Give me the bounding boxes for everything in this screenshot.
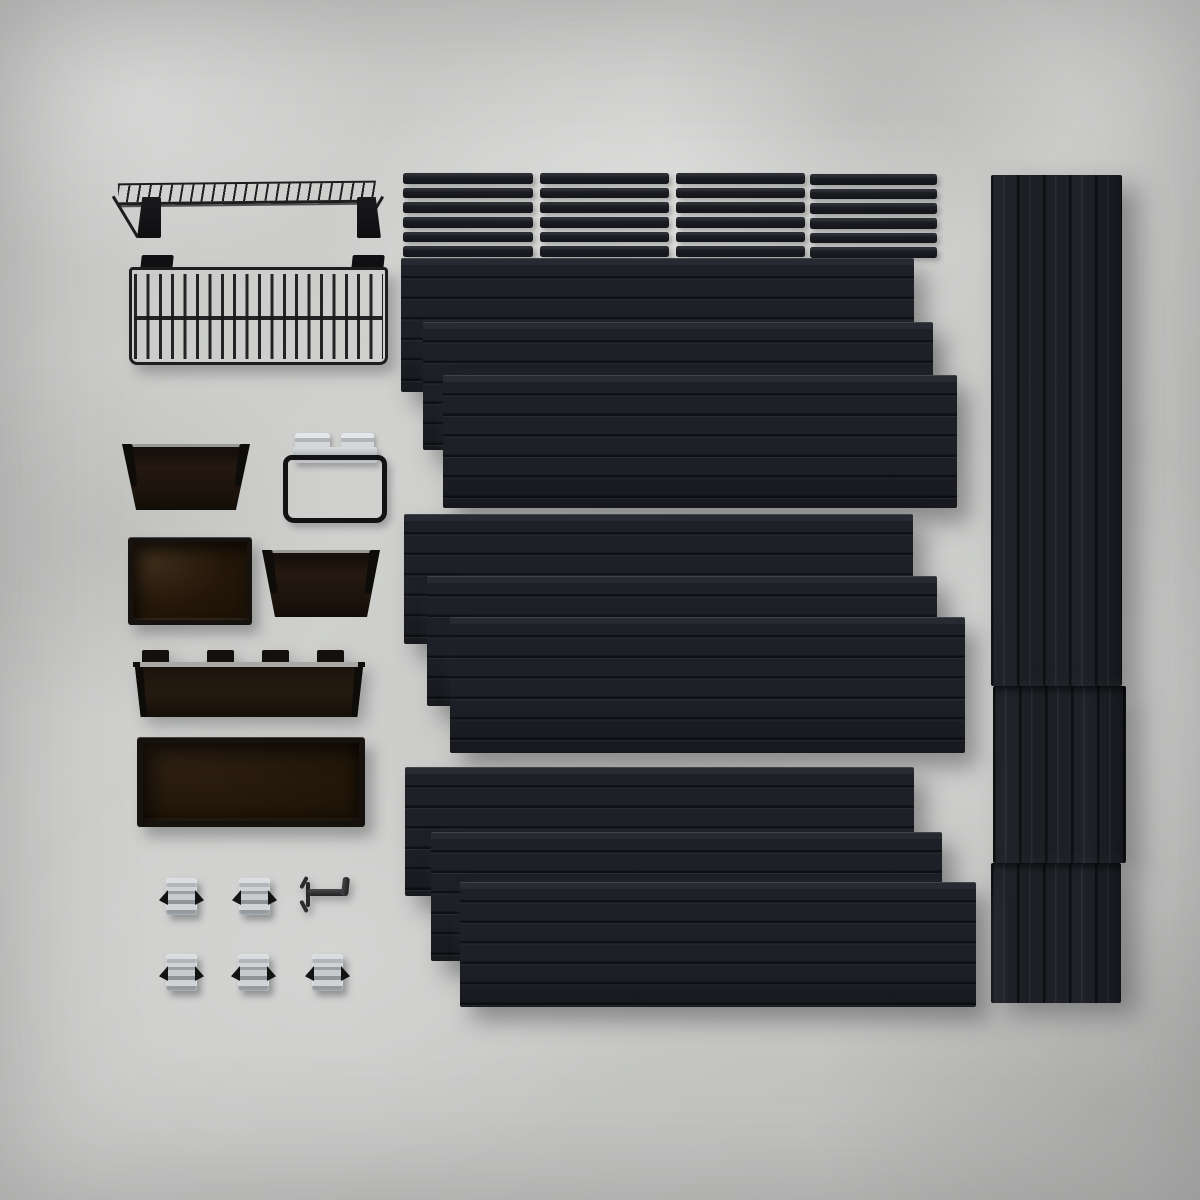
spring-clip-hook [238,954,269,991]
trim-strip [676,188,805,199]
spring-clip-hook [312,954,343,991]
trim-strip [810,218,937,229]
trim-strip [403,202,533,213]
trim-strip [540,246,669,257]
bin-rim [133,662,365,667]
small-tapered-bin [262,550,380,617]
wide-shallow-bin [133,650,365,717]
large-bin-interior [143,743,359,821]
trim-strip [403,246,533,257]
basket-frame [129,267,388,365]
slatwall-panel [460,882,976,1007]
vertical-panel-segment [991,175,1122,686]
trim-strip [676,173,805,184]
trim-strip [810,247,937,258]
trim-strip [540,232,669,243]
slatwall-panel [443,375,957,508]
hook-tip [341,877,350,897]
spring-clip-hook [166,878,197,915]
trim-strip [403,217,533,228]
trim-strip-bundle [810,174,937,258]
single-wall-hook [298,874,354,918]
trim-strip-bundle [676,173,805,257]
spring-clip-hook [166,954,197,991]
trim-strip [676,246,805,257]
large-storage-bin [137,737,365,827]
square-bin [128,537,252,625]
trim-strip [810,203,937,214]
trim-strip-bundle [540,173,669,257]
trim-strip [403,232,533,243]
square-bin-interior [133,542,247,620]
trim-strip [810,233,937,244]
trim-strip [403,188,533,199]
wire-loop-holder [283,433,387,523]
trim-strip [676,217,805,228]
slatwall-panel [450,617,965,753]
trim-strip [403,173,533,184]
trim-strip [810,189,937,200]
basket-bars [134,274,383,359]
trim-strip [676,232,805,243]
trim-strip [810,174,937,185]
vertical-panel-segment [991,863,1121,1003]
bin-body [135,667,363,717]
trim-strip [540,202,669,213]
holder-wire-loop [283,455,387,523]
small-tapered-bin [122,444,250,510]
trim-strip [540,217,669,228]
vertical-panel-segment [993,686,1126,863]
trim-strip [540,173,669,184]
product-flatlay [0,0,1200,1200]
spring-clip-hook [239,878,270,915]
trim-strip [676,202,805,213]
trim-strip [540,188,669,199]
trim-strip-bundle [403,173,533,257]
